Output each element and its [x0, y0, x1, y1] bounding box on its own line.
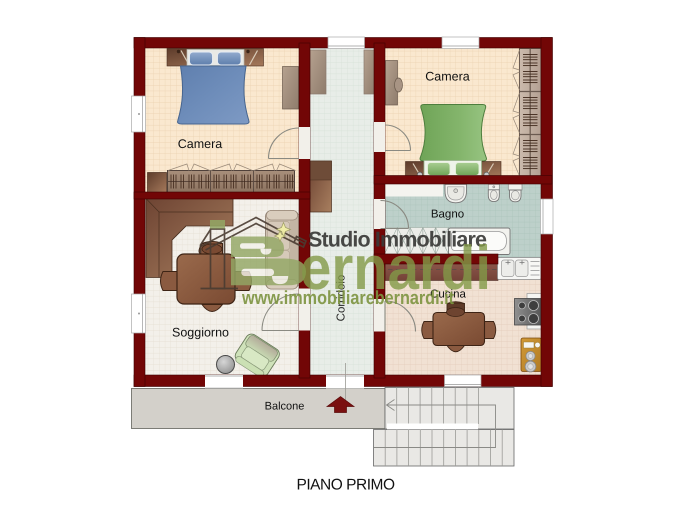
svg-text:Camera: Camera [178, 137, 223, 151]
svg-text:Bagno: Bagno [431, 209, 464, 221]
svg-text:Soggiorno: Soggiorno [172, 326, 229, 340]
svg-text:Camera: Camera [425, 70, 470, 84]
svg-text:PIANO PRIMO: PIANO PRIMO [297, 477, 396, 494]
svg-text:www.immobiliarebernardi.it: www.immobiliarebernardi.it [241, 288, 454, 309]
svg-text:Balcone: Balcone [265, 401, 305, 413]
